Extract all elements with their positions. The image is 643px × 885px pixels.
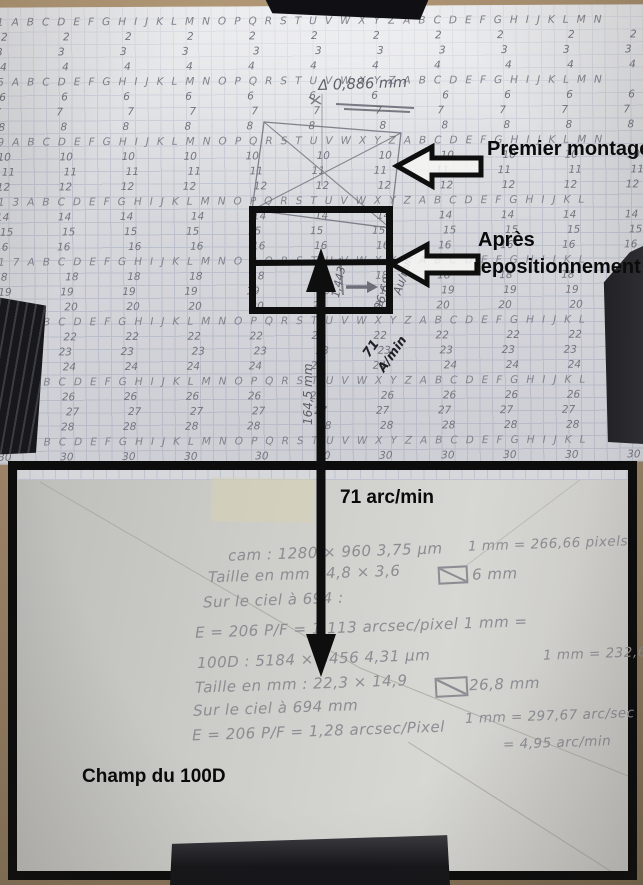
apres-label-line1: Après <box>478 229 535 252</box>
arrowhead-down <box>306 634 336 677</box>
arrowhead-up <box>306 248 336 292</box>
apres-label-line2: repositionnement <box>473 256 641 279</box>
apres-arrow <box>392 245 478 284</box>
ink-annotation-layer <box>0 0 643 885</box>
annotated-photo: 1ABCDEFGHIJKLMNOPQRSTUVWXYZABCDEFGHIJKLM… <box>0 0 643 885</box>
premier-montage-label: Premier montage <box>487 138 643 161</box>
premier-montage-arrow <box>397 147 481 186</box>
